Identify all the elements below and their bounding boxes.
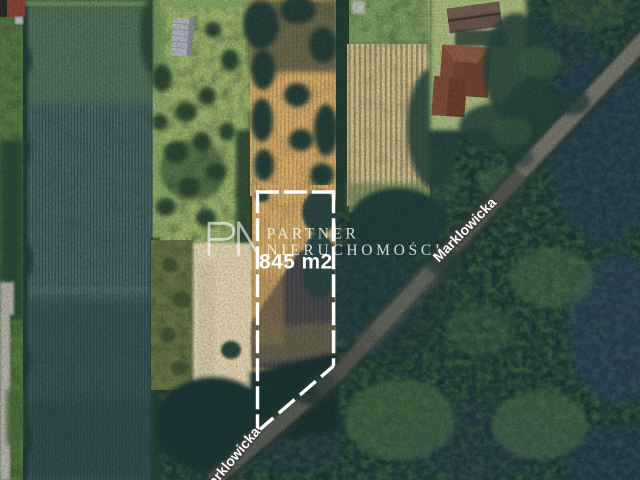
- svg-text:845 m2: 845 m2: [259, 251, 333, 274]
- svg-text:PARTNER: PARTNER: [267, 226, 360, 243]
